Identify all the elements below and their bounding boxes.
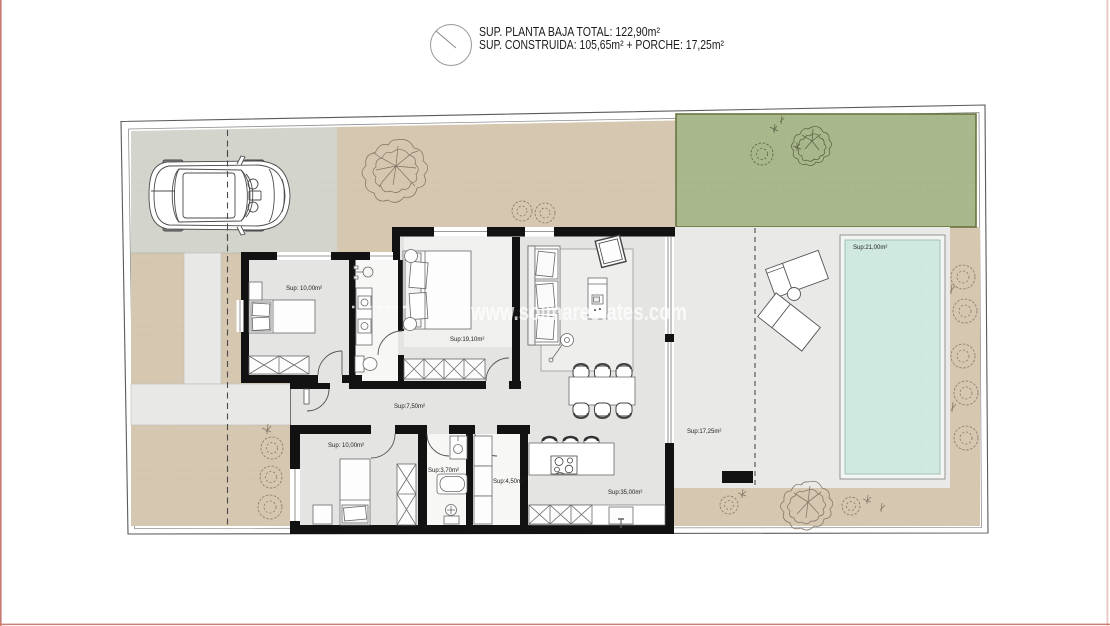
svg-text:Sup:17,25m²: Sup:17,25m² [687,429,721,435]
svg-text:SUP. CONSTRUIDA: 105,65m² + PO: SUP. CONSTRUIDA: 105,65m² + PORCHE: 17,2… [479,37,725,52]
svg-text:Sup: 10,00m²: Sup: 10,00m² [286,286,322,292]
svg-text:Sup:7,50m²: Sup:7,50m² [394,404,425,410]
svg-text:Sup: 10,00m²: Sup: 10,00m² [328,443,364,449]
svg-text:Sup:21,00m²: Sup:21,00m² [853,245,887,251]
svg-text:www.solmarestates.com: www.solmarestates.com [470,299,687,326]
svg-text:Sup:19,10m²: Sup:19,10m² [450,337,484,343]
svg-text:Sup:4,50m²: Sup:4,50m² [493,479,524,485]
svg-text:Sup:35,00m²: Sup:35,00m² [608,490,642,496]
svg-text:Sup:3,70m²: Sup:3,70m² [428,468,459,474]
